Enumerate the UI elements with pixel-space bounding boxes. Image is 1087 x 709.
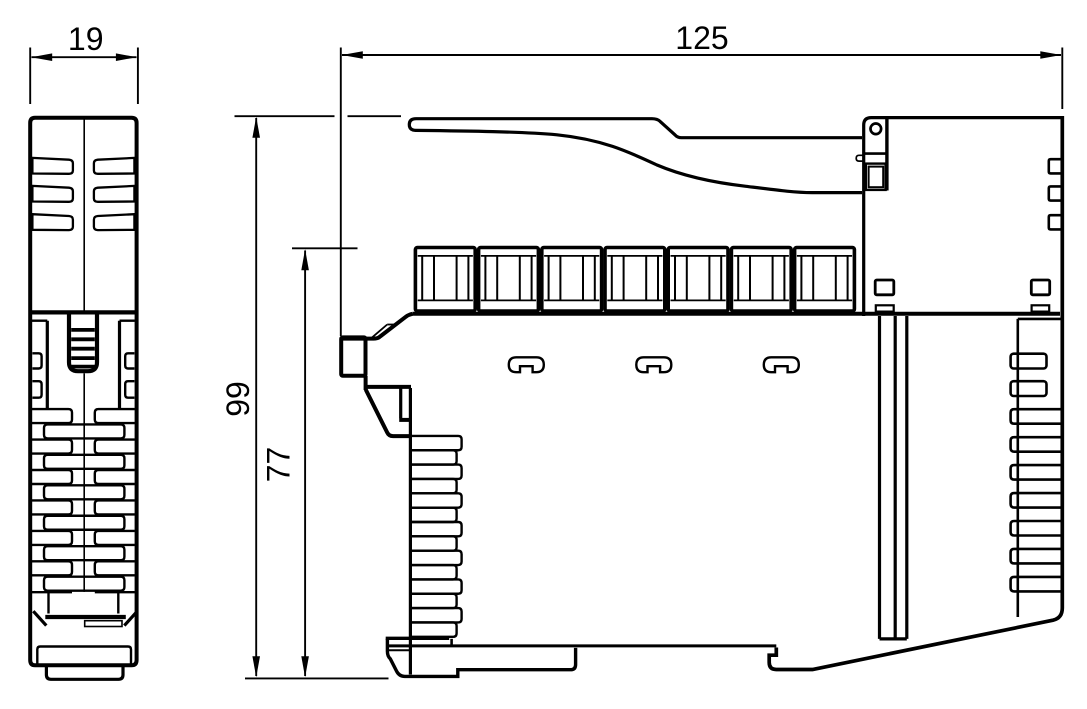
svg-text:125: 125 [675, 20, 728, 56]
svg-text:19: 19 [68, 21, 104, 57]
svg-text:99: 99 [220, 381, 256, 417]
svg-text:77: 77 [261, 447, 297, 483]
